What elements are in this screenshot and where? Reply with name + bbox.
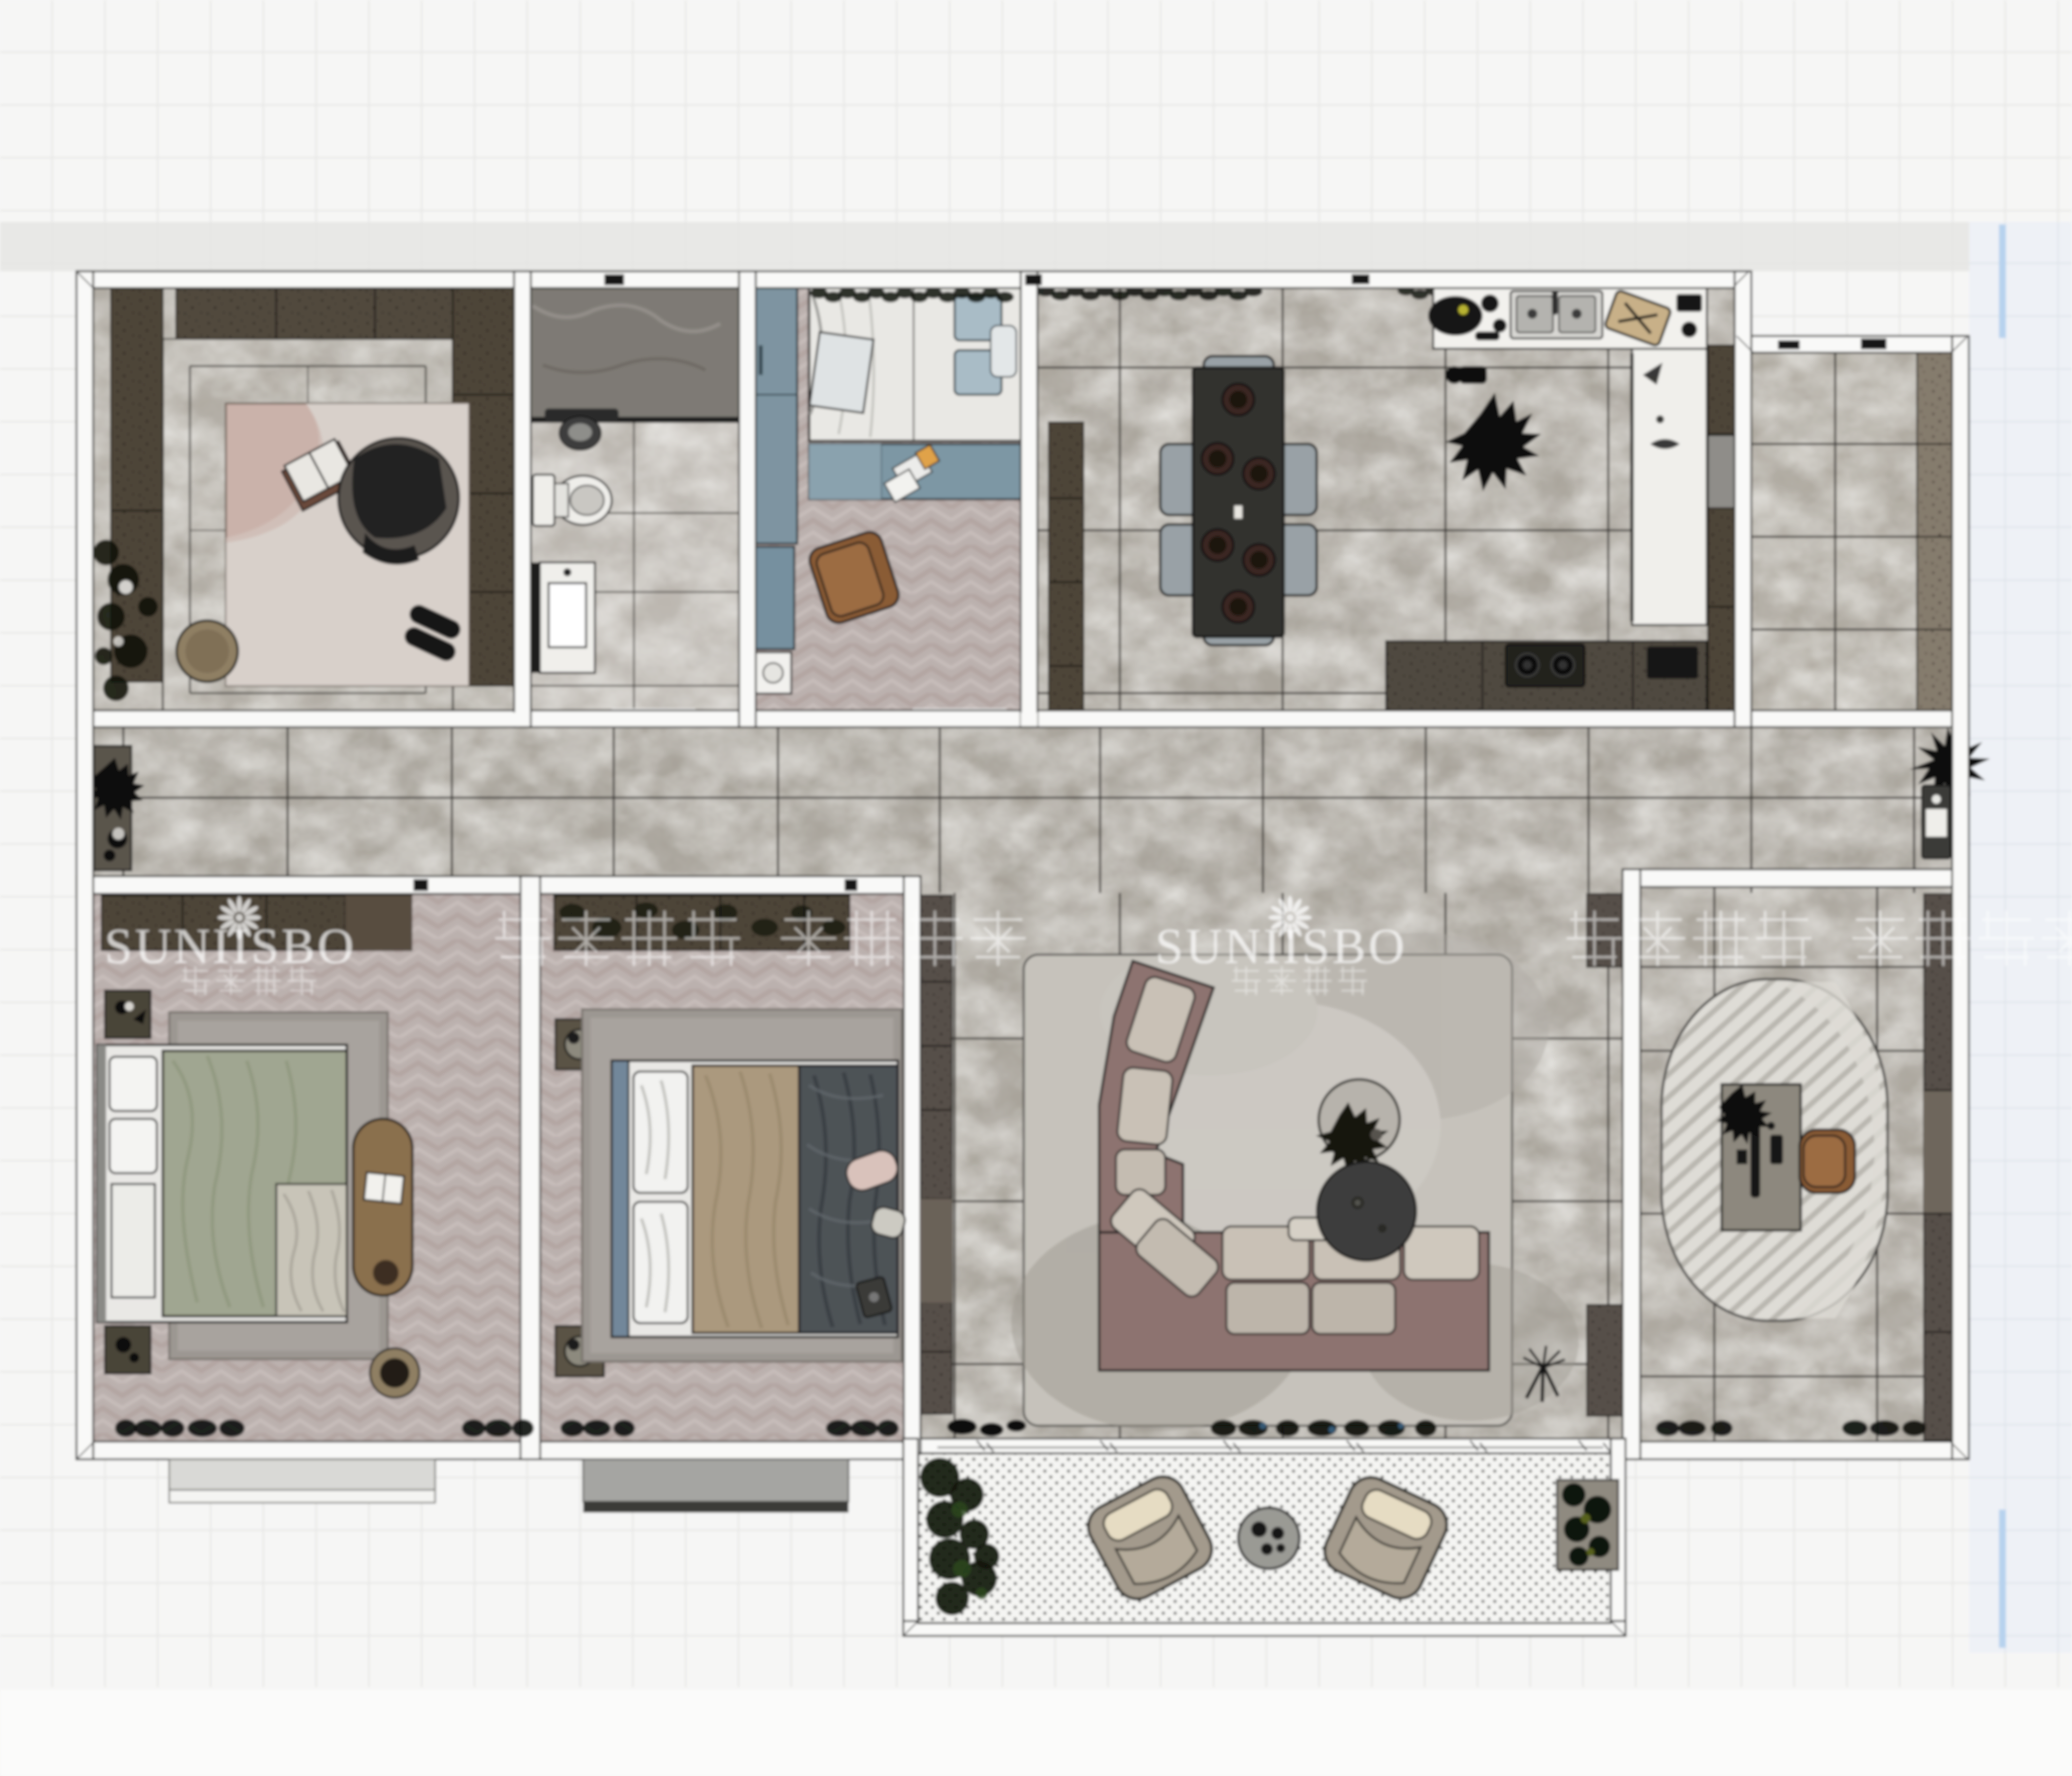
svg-text:SUNIISBO: SUNIISBO <box>1155 919 1407 974</box>
svg-text:SUNIISBO: SUNIISBO <box>105 919 356 974</box>
